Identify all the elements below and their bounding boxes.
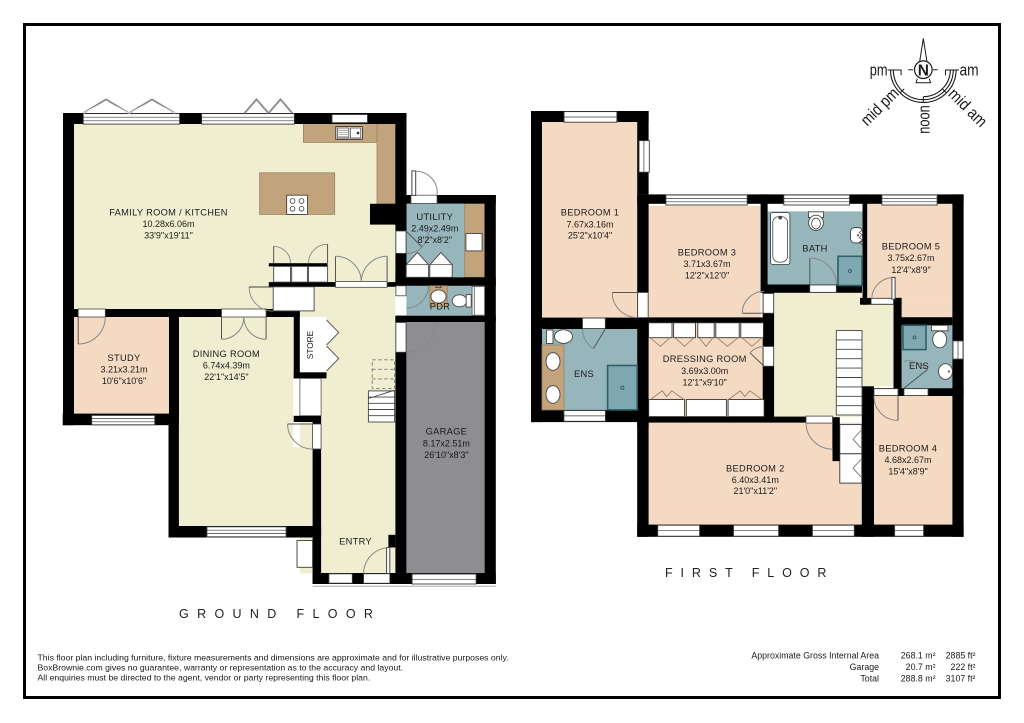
svg-text:STUDY: STUDY bbox=[107, 353, 140, 363]
svg-text:26'10"x8'3": 26'10"x8'3" bbox=[424, 450, 468, 460]
svg-text:This floor plan including furn: This floor plan including furniture, fix… bbox=[38, 652, 509, 662]
svg-text:6.40x3.41m: 6.40x3.41m bbox=[732, 475, 779, 485]
svg-text:noon: noon bbox=[915, 105, 933, 134]
svg-text:3.75x2.67m: 3.75x2.67m bbox=[887, 253, 934, 263]
svg-text:DINING ROOM: DINING ROOM bbox=[193, 349, 260, 359]
svg-text:STORE: STORE bbox=[305, 330, 315, 359]
svg-text:UTILITY: UTILITY bbox=[416, 212, 453, 222]
svg-text:4.68x2.67m: 4.68x2.67m bbox=[884, 455, 931, 465]
svg-text:N: N bbox=[918, 62, 929, 79]
svg-text:DRESSING ROOM: DRESSING ROOM bbox=[663, 354, 747, 364]
svg-text:15'4"x8'9": 15'4"x8'9" bbox=[888, 467, 927, 477]
svg-text:12'1"x9'10": 12'1"x9'10" bbox=[683, 377, 727, 387]
svg-text:222 ft²: 222 ft² bbox=[951, 662, 976, 672]
svg-text:3107 ft²: 3107 ft² bbox=[946, 673, 976, 683]
svg-text:GARAGE: GARAGE bbox=[426, 427, 468, 437]
svg-text:268.1 m²: 268.1 m² bbox=[901, 651, 936, 661]
svg-text:BEDROOM 3: BEDROOM 3 bbox=[678, 248, 737, 258]
svg-text:3.69x3.00m: 3.69x3.00m bbox=[681, 366, 728, 376]
svg-text:6.74x4.39m: 6.74x4.39m bbox=[203, 361, 250, 371]
svg-text:BEDROOM 5: BEDROOM 5 bbox=[882, 242, 941, 252]
svg-text:BEDROOM 1: BEDROOM 1 bbox=[561, 208, 620, 218]
svg-text:3.71x3.67m: 3.71x3.67m bbox=[683, 259, 730, 269]
svg-text:ENTRY: ENTRY bbox=[339, 537, 372, 547]
svg-text:BoxBrownie.com gives no guaran: BoxBrownie.com gives no guarantee, warra… bbox=[38, 663, 404, 673]
svg-text:12'2"x12'0": 12'2"x12'0" bbox=[685, 271, 729, 281]
svg-text:am: am bbox=[960, 62, 979, 80]
svg-text:Garage: Garage bbox=[850, 662, 879, 672]
svg-text:GROUND FLOOR: GROUND FLOOR bbox=[179, 607, 381, 621]
svg-text:Total: Total bbox=[860, 673, 879, 683]
svg-text:2885 ft²: 2885 ft² bbox=[946, 651, 976, 661]
svg-text:25'2"x10'4": 25'2"x10'4" bbox=[568, 231, 612, 241]
svg-text:FAMILY ROOM / KITCHEN: FAMILY ROOM / KITCHEN bbox=[109, 207, 228, 217]
svg-text:PDR: PDR bbox=[430, 301, 451, 311]
svg-text:8'2"x8'2": 8'2"x8'2" bbox=[418, 235, 452, 245]
svg-text:FIRST FLOOR: FIRST FLOOR bbox=[665, 566, 834, 580]
svg-text:8.17x2.51m: 8.17x2.51m bbox=[423, 438, 470, 448]
svg-text:BEDROOM 2: BEDROOM 2 bbox=[726, 463, 785, 473]
svg-text:All enquiries must be directed: All enquiries must be directed to the ag… bbox=[38, 673, 371, 683]
svg-text:12'4"x8'9": 12'4"x8'9" bbox=[891, 265, 930, 275]
svg-text:21'0"x11'2": 21'0"x11'2" bbox=[733, 486, 777, 496]
svg-text:288.8 m²: 288.8 m² bbox=[901, 673, 936, 683]
svg-text:ENS: ENS bbox=[574, 369, 594, 379]
svg-text:3.21x3.21m: 3.21x3.21m bbox=[100, 365, 147, 375]
svg-text:33'9"x19'11": 33'9"x19'11" bbox=[144, 231, 193, 241]
svg-text:7.67x3.16m: 7.67x3.16m bbox=[566, 219, 613, 229]
svg-text:pm: pm bbox=[870, 62, 888, 80]
svg-text:Approximate Gross Internal Are: Approximate Gross Internal Area bbox=[751, 651, 879, 661]
svg-text:BATH: BATH bbox=[802, 243, 827, 253]
svg-text:ENS: ENS bbox=[909, 361, 929, 371]
svg-text:20.7 m²: 20.7 m² bbox=[906, 662, 936, 672]
svg-text:BEDROOM 4: BEDROOM 4 bbox=[879, 443, 938, 453]
svg-text:10'6"x10'6": 10'6"x10'6" bbox=[102, 376, 146, 386]
svg-text:22'1"x14'5": 22'1"x14'5" bbox=[204, 372, 248, 382]
svg-text:2.49x2.49m: 2.49x2.49m bbox=[411, 224, 458, 234]
svg-text:10.28x6.06m: 10.28x6.06m bbox=[142, 219, 194, 229]
